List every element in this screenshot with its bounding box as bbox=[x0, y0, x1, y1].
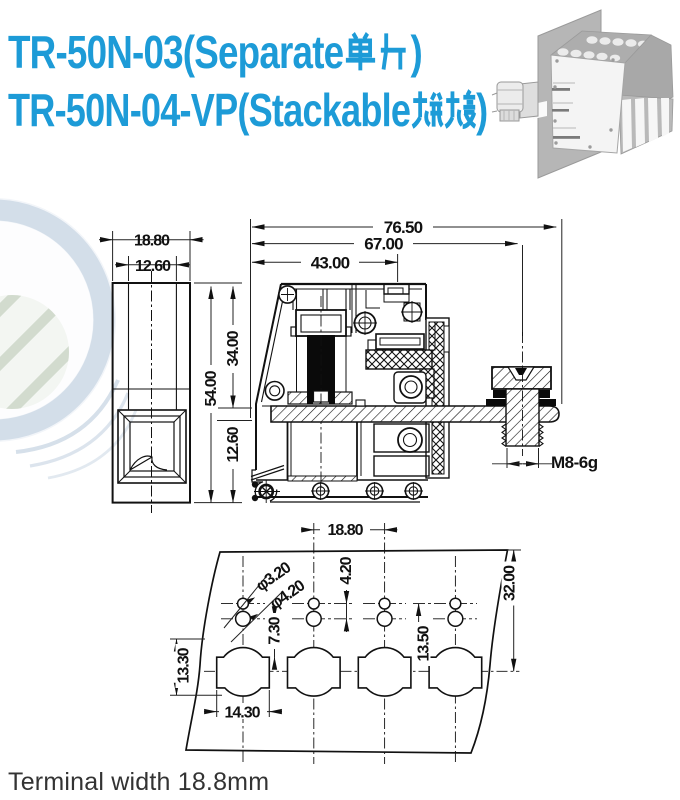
svg-text:4.20: 4.20 bbox=[338, 556, 355, 584]
svg-text:54.00: 54.00 bbox=[203, 370, 220, 406]
svg-text:13.30: 13.30 bbox=[176, 647, 193, 683]
svg-text:7.30: 7.30 bbox=[267, 616, 284, 644]
svg-text:M8-6g: M8-6g bbox=[551, 453, 598, 472]
svg-text:18.80: 18.80 bbox=[327, 522, 363, 539]
svg-text:14.30: 14.30 bbox=[224, 705, 260, 722]
svg-text:32.00: 32.00 bbox=[502, 565, 519, 601]
svg-text:43.00: 43.00 bbox=[311, 253, 350, 272]
svg-text:13.50: 13.50 bbox=[416, 625, 433, 661]
svg-text:18.80: 18.80 bbox=[134, 233, 170, 250]
svg-text:34.00: 34.00 bbox=[225, 330, 242, 366]
svg-text:67.00: 67.00 bbox=[364, 235, 403, 254]
svg-text:12.60: 12.60 bbox=[135, 258, 171, 275]
svg-text:12.60: 12.60 bbox=[225, 426, 242, 462]
